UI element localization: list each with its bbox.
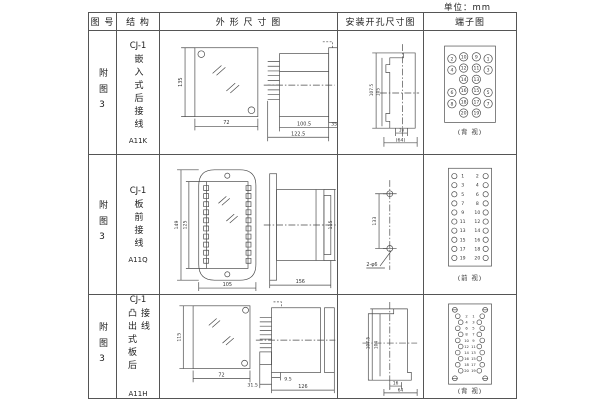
terminal-number: 2 xyxy=(476,173,479,179)
install-drawing-a11q: 133 2-φ6 xyxy=(339,156,423,294)
terminal-number: 8 xyxy=(465,333,468,337)
terminal-number: 12 xyxy=(461,65,467,71)
dim-label-outer-h: 149 xyxy=(174,220,180,229)
dim-label-width: 72 xyxy=(218,372,224,378)
hole-spec-label: 2-φ6 xyxy=(366,262,377,268)
header-terminal-diagram: 端子图 xyxy=(424,13,516,31)
datasheet-page: 单位：mm 图 号 结 构 外 形 尺 寸 图 安装开孔尺寸图 端子图 附图3 … xyxy=(0,0,600,400)
outline-drawing-a11q: 149 125 105 156 115 xyxy=(161,156,337,294)
terminal-number: 16 xyxy=(464,357,469,361)
structure-name: 嵌入式后接线 xyxy=(132,54,145,132)
dim-label-step: 9.5 xyxy=(284,376,291,382)
structure-cell-a11k: CJ-1 嵌入式后接线 A11K xyxy=(117,31,160,155)
terminal-number: 6 xyxy=(476,191,479,197)
outline-cell-a11h: 115 72 31.5 9.5 126 xyxy=(160,295,338,398)
header-structure: 结 构 xyxy=(117,13,160,31)
model-label: A11H xyxy=(129,390,148,398)
terminal-number: 9 xyxy=(472,339,475,343)
terminal-number: 1 xyxy=(472,315,475,319)
terminal-number: 13 xyxy=(473,76,479,82)
dim-label-length: 156 xyxy=(295,279,304,285)
terminal-cell-a11k: 2 10 9 1 4 12 11 3 14 13 6 16 15 5 8 18 xyxy=(424,31,516,155)
terminal-number: 14 xyxy=(464,351,469,355)
terminal-number: 17 xyxy=(473,99,479,105)
outline-cell-a11q: 149 125 105 156 115 xyxy=(160,155,338,295)
dim-label-inner-h: 105 xyxy=(375,87,381,95)
terminal-number: 4 xyxy=(450,67,453,73)
fig-no-label: 附图3 xyxy=(96,322,109,371)
outline-linework xyxy=(181,41,337,140)
view-caption: (背 视) xyxy=(458,127,483,136)
terminal-number: 6 xyxy=(465,327,468,331)
terminal-number: 3 xyxy=(487,67,490,73)
terminal-number: 5 xyxy=(472,327,475,331)
terminal-number: 4 xyxy=(476,182,479,188)
series-label: CJ-1 xyxy=(130,186,147,196)
dim-label-inner-w: 16 xyxy=(392,381,398,387)
terminal-number: 19 xyxy=(460,255,466,261)
terminal-number: 10 xyxy=(474,210,480,216)
terminal-diagram-a11h: 2 1 4 3 6 5 8 7 10 9 12 11 14 13 16 15 1 xyxy=(425,296,515,397)
fig-no-label: 附图3 xyxy=(96,200,109,249)
terminal-number: 19 xyxy=(473,110,479,116)
series-label: CJ-1 xyxy=(130,295,147,305)
terminal-number: 5 xyxy=(461,191,464,197)
install-cell-a11h: 107.5 104 16 64 xyxy=(338,295,424,398)
terminal-cell-a11q: 1 2 3 4 5 6 7 8 9 10 11 12 13 14 15 16 1 xyxy=(424,155,516,295)
terminal-number: 11 xyxy=(460,219,466,225)
terminal-number: 20 xyxy=(464,369,469,373)
install-linework xyxy=(366,180,396,270)
terminal-number: 11 xyxy=(471,345,476,349)
terminal-number: 14 xyxy=(461,76,467,82)
terminal-number: 3 xyxy=(472,321,475,325)
structure-name: 板前接线 xyxy=(132,199,145,251)
dim-label-width: 105 xyxy=(222,282,231,288)
dim-label-inner-h: 104 xyxy=(373,341,379,349)
outline-drawing-a11h: 115 72 31.5 9.5 126 xyxy=(161,296,337,397)
terminal-number: 16 xyxy=(474,237,480,243)
terminal-number: 7 xyxy=(472,333,475,337)
structure-cell-a11q: CJ-1 板前接线 A11Q xyxy=(117,155,160,295)
dim-label-outer-w: (64) xyxy=(395,137,405,143)
dim-label-hole-pitch: 133 xyxy=(372,216,378,225)
terminal-number: 18 xyxy=(464,363,469,367)
terminal-number: 1 xyxy=(487,56,490,62)
model-label: A11Q xyxy=(128,256,147,264)
terminal-number: 13 xyxy=(460,228,466,234)
terminal-number: 18 xyxy=(461,99,467,105)
dim-label-outer-w: 64 xyxy=(397,387,403,393)
install-drawing-a11k: 107.5 105 16 (64) xyxy=(339,32,423,154)
model-label: A11K xyxy=(129,137,147,145)
terminal-number: 2 xyxy=(450,56,453,62)
terminal-numbers: 2 10 9 1 4 12 11 3 14 13 6 16 15 5 8 18 xyxy=(450,54,489,116)
view-caption: (背 视) xyxy=(458,386,483,395)
dim-label-height: 115 xyxy=(176,333,182,342)
terminal-number: 19 xyxy=(471,369,476,373)
dim-label-inner-h: 125 xyxy=(182,220,188,229)
dim-label-width: 72 xyxy=(223,119,229,125)
terminal-number: 15 xyxy=(460,237,466,243)
outline-linework xyxy=(179,302,335,393)
terminal-number: 15 xyxy=(473,88,479,94)
view-caption: (前 视) xyxy=(458,272,483,281)
terminal-diagram-a11q: 1 2 3 4 5 6 7 8 9 10 11 12 13 14 15 16 1 xyxy=(425,156,515,294)
terminal-number: 2 xyxy=(465,315,467,319)
dim-label-body: 126 xyxy=(298,384,307,390)
terminal-number: 4 xyxy=(465,321,468,325)
terminal-number: 17 xyxy=(460,246,466,252)
terminal-number: 7 xyxy=(487,101,490,107)
terminal-number: 14 xyxy=(474,228,480,234)
terminal-linework xyxy=(448,304,491,384)
terminal-number: 16 xyxy=(461,88,467,94)
dim-label-inner-w: 16 xyxy=(398,127,404,133)
dim-label-pins: 31.5 xyxy=(247,383,257,389)
fig-no-cell-a11k: 附图3 xyxy=(89,31,117,155)
series-label: CJ-1 xyxy=(130,41,147,51)
spec-table: 图 号 结 构 外 形 尺 寸 图 安装开孔尺寸图 端子图 附图3 CJ-1 嵌… xyxy=(88,12,517,399)
terminal-number: 3 xyxy=(461,182,464,188)
terminal-cell-a11h: 2 1 4 3 6 5 8 7 10 9 12 11 14 13 16 15 1 xyxy=(424,295,516,398)
outline-cell-a11k: 135 72 100.5 122.5 35 xyxy=(160,31,338,155)
terminal-number: 13 xyxy=(471,351,476,355)
header-install-holes: 安装开孔尺寸图 xyxy=(338,13,424,31)
terminal-number: 18 xyxy=(474,246,480,252)
terminal-diagram-a11k: 2 10 9 1 4 12 11 3 14 13 6 16 15 5 8 18 xyxy=(425,32,515,154)
structure-cell-a11h: CJ-1 凸出式板后接线 A11H xyxy=(117,295,160,398)
outline-linework xyxy=(177,169,336,290)
fig-no-cell-a11q: 附图3 xyxy=(89,155,117,295)
terminal-number: 9 xyxy=(461,210,464,216)
terminal-number: 7 xyxy=(461,200,464,206)
terminal-number: 20 xyxy=(461,110,467,116)
fig-no-label: 附图3 xyxy=(96,68,109,117)
terminal-linework xyxy=(448,168,491,266)
dim-label-side-h: 115 xyxy=(327,220,333,229)
terminal-number: 6 xyxy=(450,90,453,96)
terminal-number: 9 xyxy=(475,54,478,60)
terminal-number: 12 xyxy=(464,345,469,349)
header-outline-dims: 外 形 尺 寸 图 xyxy=(160,13,338,31)
install-cell-a11q: 133 2-φ6 xyxy=(338,155,424,295)
terminal-number: 20 xyxy=(474,255,480,261)
structure-name: 凸出式板后接线 xyxy=(125,308,151,385)
install-cell-a11k: 107.5 105 16 (64) xyxy=(338,31,424,155)
header-fig-no: 图 号 xyxy=(89,13,117,31)
terminal-number: 8 xyxy=(450,101,453,107)
terminal-number: 10 xyxy=(461,54,467,60)
terminal-numbers: 1 2 3 4 5 6 7 8 9 10 11 12 13 14 15 16 1 xyxy=(460,173,481,261)
terminal-numbers: 2 1 4 3 6 5 8 7 10 9 12 11 14 13 16 15 1 xyxy=(464,315,476,374)
dim-label-outer-h: 107.5 xyxy=(369,83,375,96)
fig-no-cell-a11h: 附图3 xyxy=(89,295,117,398)
dim-label-total: 122.5 xyxy=(291,131,305,137)
terminal-number: 1 xyxy=(461,173,464,179)
terminal-number: 10 xyxy=(464,339,469,343)
terminal-number: 5 xyxy=(487,90,490,96)
dim-label-outer-h: 107.5 xyxy=(365,337,371,350)
dim-label-height: 135 xyxy=(178,77,184,86)
terminal-number: 15 xyxy=(471,357,476,361)
dim-label-body: 100.5 xyxy=(297,121,311,127)
outline-drawing-a11k: 135 72 100.5 122.5 35 xyxy=(161,32,337,154)
terminal-number: 8 xyxy=(476,200,479,206)
terminal-number: 12 xyxy=(474,219,480,225)
terminal-number: 17 xyxy=(471,363,476,367)
terminal-number: 11 xyxy=(473,65,479,71)
dim-label-rear: 35 xyxy=(331,121,337,127)
install-drawing-a11h: 107.5 104 16 64 xyxy=(339,296,423,397)
